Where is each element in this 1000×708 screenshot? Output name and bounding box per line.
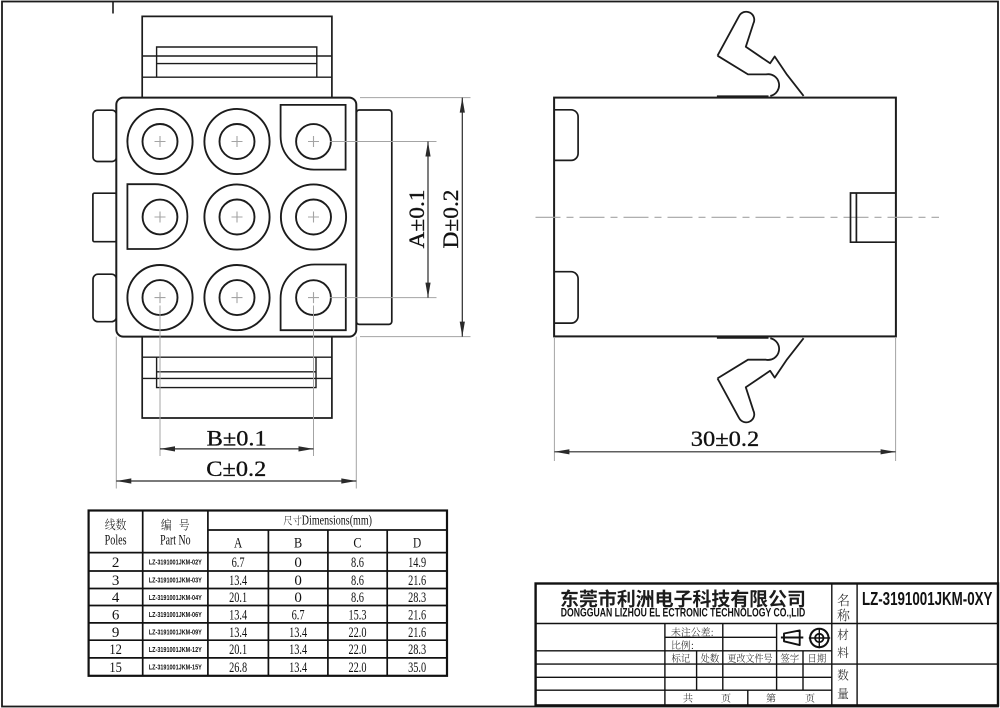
svg-text:Dimensions(mm): Dimensions(mm) bbox=[302, 513, 372, 528]
svg-text:8.6: 8.6 bbox=[351, 590, 364, 606]
svg-text:6.7: 6.7 bbox=[232, 555, 245, 571]
svg-text:15.3: 15.3 bbox=[349, 607, 367, 623]
svg-text:30±0.2: 30±0.2 bbox=[691, 426, 760, 451]
svg-text:12: 12 bbox=[109, 642, 122, 658]
svg-text:LZ-3191001JKM-12Y: LZ-3191001JKM-12Y bbox=[149, 645, 202, 654]
svg-text:B: B bbox=[294, 535, 302, 551]
svg-text:LZ-3191001JKM-0XY: LZ-3191001JKM-0XY bbox=[862, 588, 993, 609]
svg-text:LZ-3191001JKM-03Y: LZ-3191001JKM-03Y bbox=[149, 576, 202, 585]
svg-text:21.6: 21.6 bbox=[408, 625, 426, 641]
svg-text:26.8: 26.8 bbox=[229, 660, 247, 676]
svg-text:LZ-3191001JKM-15Y: LZ-3191001JKM-15Y bbox=[149, 663, 202, 672]
svg-text:A: A bbox=[234, 535, 242, 551]
svg-text:LZ-3191001JKM-06Y: LZ-3191001JKM-06Y bbox=[149, 610, 202, 619]
svg-text:2: 2 bbox=[112, 555, 120, 571]
svg-text:4: 4 bbox=[112, 590, 120, 606]
svg-text:13.4: 13.4 bbox=[229, 607, 247, 623]
svg-text:0: 0 bbox=[294, 590, 302, 606]
svg-text:0: 0 bbox=[294, 573, 302, 589]
svg-text:LZ-3191001JKM-02Y: LZ-3191001JKM-02Y bbox=[149, 558, 202, 567]
svg-text:13.4: 13.4 bbox=[289, 642, 307, 658]
svg-text:8.6: 8.6 bbox=[351, 573, 364, 589]
svg-text:21.6: 21.6 bbox=[408, 607, 426, 623]
svg-text:C: C bbox=[353, 535, 361, 551]
svg-text:13.4: 13.4 bbox=[229, 573, 247, 589]
svg-text:20.1: 20.1 bbox=[229, 590, 247, 606]
svg-text:D±0.2: D±0.2 bbox=[438, 190, 463, 249]
svg-text:B±0.1: B±0.1 bbox=[207, 426, 267, 451]
svg-text:22.0: 22.0 bbox=[349, 625, 367, 641]
svg-text:28.3: 28.3 bbox=[408, 642, 426, 658]
svg-text:C±0.2: C±0.2 bbox=[206, 456, 266, 481]
svg-text:14.9: 14.9 bbox=[408, 555, 426, 571]
svg-text:15: 15 bbox=[109, 660, 122, 676]
svg-text:35.0: 35.0 bbox=[408, 660, 426, 676]
svg-text:3: 3 bbox=[112, 573, 120, 589]
svg-text:9: 9 bbox=[112, 625, 120, 641]
svg-text:0: 0 bbox=[294, 555, 302, 571]
svg-text:6: 6 bbox=[112, 607, 120, 623]
svg-text:13.4: 13.4 bbox=[289, 625, 307, 641]
svg-text:DONGGUAN LIZHOU EL ECTRONIC TE: DONGGUAN LIZHOU EL ECTRONIC TECHNOLOGY C… bbox=[561, 606, 806, 620]
svg-text:20.1: 20.1 bbox=[229, 642, 247, 658]
svg-text:Part No: Part No bbox=[160, 533, 190, 549]
svg-text:LZ-3191001JKM-09Y: LZ-3191001JKM-09Y bbox=[149, 627, 202, 636]
svg-text:22.0: 22.0 bbox=[349, 660, 367, 676]
svg-text:6.7: 6.7 bbox=[292, 607, 305, 623]
svg-text:13.4: 13.4 bbox=[289, 660, 307, 676]
svg-text:Poles: Poles bbox=[105, 533, 127, 549]
svg-text:22.0: 22.0 bbox=[349, 642, 367, 658]
svg-text:D: D bbox=[413, 535, 421, 551]
svg-text:LZ-3191001JKM-04Y: LZ-3191001JKM-04Y bbox=[149, 593, 202, 602]
svg-text:A±0.1: A±0.1 bbox=[404, 190, 429, 249]
svg-text:28.3: 28.3 bbox=[408, 590, 426, 606]
svg-text:21.6: 21.6 bbox=[408, 573, 426, 589]
svg-text:8.6: 8.6 bbox=[351, 555, 364, 571]
svg-text:13.4: 13.4 bbox=[229, 625, 247, 641]
